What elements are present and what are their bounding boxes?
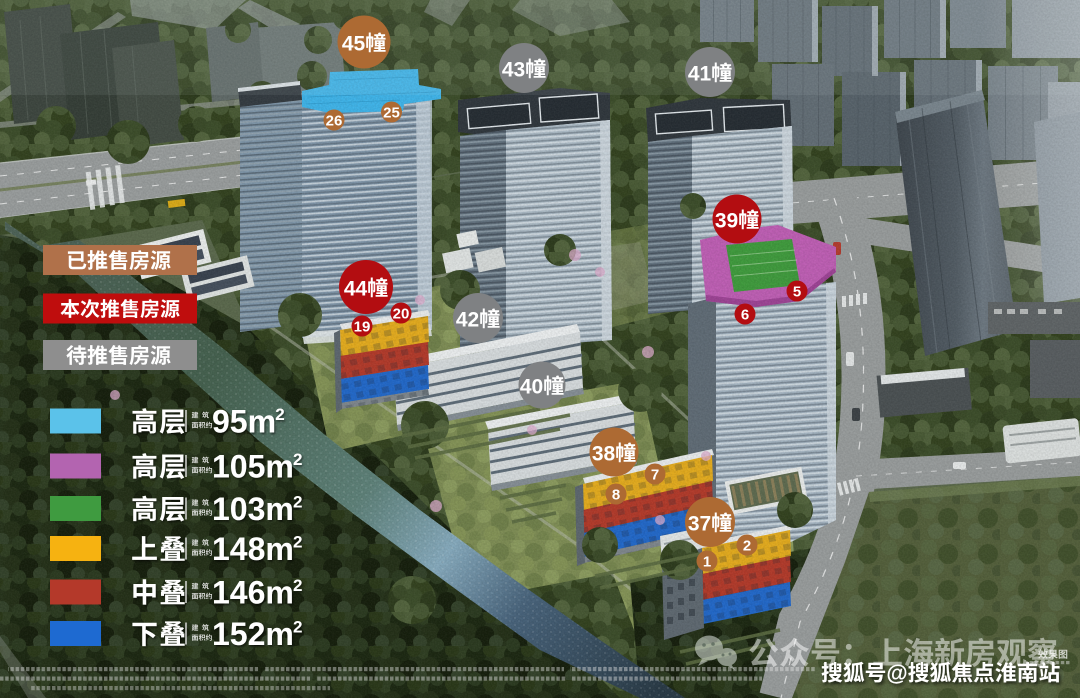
svg-text:41: 41	[688, 62, 712, 85]
svg-text:44: 44	[344, 277, 368, 300]
svg-text:2: 2	[743, 537, 751, 554]
svg-text:2: 2	[293, 450, 302, 469]
svg-text:20: 20	[393, 305, 410, 322]
svg-text:39: 39	[715, 209, 738, 232]
svg-text:103m: 103m	[212, 491, 294, 527]
svg-text:5: 5	[793, 283, 801, 300]
svg-text:@: @	[886, 661, 907, 686]
svg-text:152m: 152m	[212, 616, 294, 652]
svg-text:2: 2	[275, 405, 284, 424]
svg-text:25: 25	[383, 104, 400, 121]
svg-text:2: 2	[293, 533, 302, 552]
svg-text:105m: 105m	[212, 449, 294, 485]
svg-text:2: 2	[293, 493, 302, 512]
svg-text:38: 38	[592, 442, 616, 465]
svg-text:26: 26	[326, 112, 343, 129]
svg-text:37: 37	[688, 512, 711, 535]
svg-text:95m: 95m	[212, 404, 276, 440]
svg-text:7: 7	[651, 466, 659, 483]
svg-text:1: 1	[703, 553, 711, 570]
svg-text:2: 2	[293, 618, 302, 637]
svg-text:19: 19	[354, 318, 371, 335]
svg-text:40: 40	[520, 375, 543, 398]
svg-text:45: 45	[342, 32, 366, 55]
svg-text:43: 43	[502, 58, 525, 81]
svg-text:42: 42	[456, 308, 479, 331]
svg-text:6: 6	[741, 306, 749, 323]
svg-text:146m: 146m	[212, 575, 294, 611]
svg-text:148m: 148m	[212, 531, 294, 567]
svg-text:2: 2	[293, 576, 302, 595]
svg-text:8: 8	[612, 486, 620, 503]
